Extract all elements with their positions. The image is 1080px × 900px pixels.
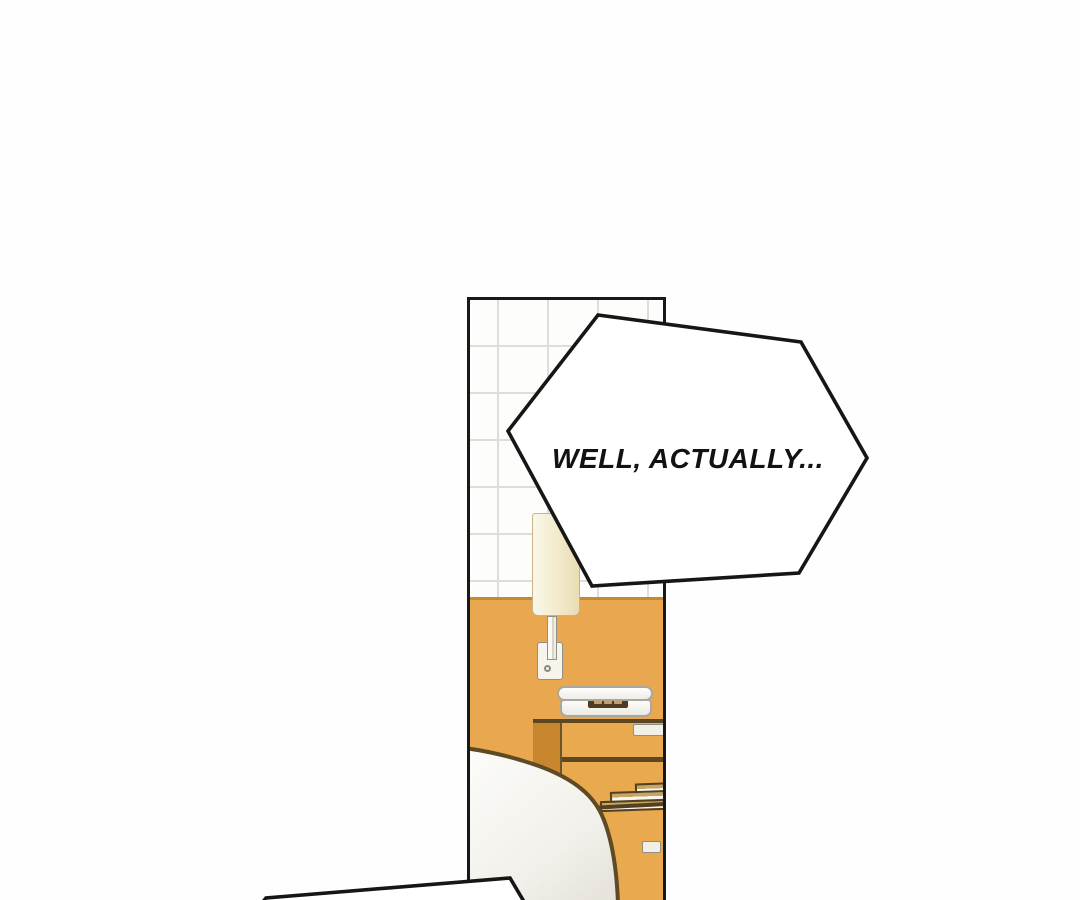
comic-page: { "page": { "kind": "webtoon comic panel… — [0, 0, 1080, 900]
comic-panel — [467, 297, 666, 900]
speech-bubble-text: WELL, ACTUALLY... — [508, 441, 868, 477]
bed — [470, 300, 663, 900]
bed-blanket — [470, 748, 618, 900]
